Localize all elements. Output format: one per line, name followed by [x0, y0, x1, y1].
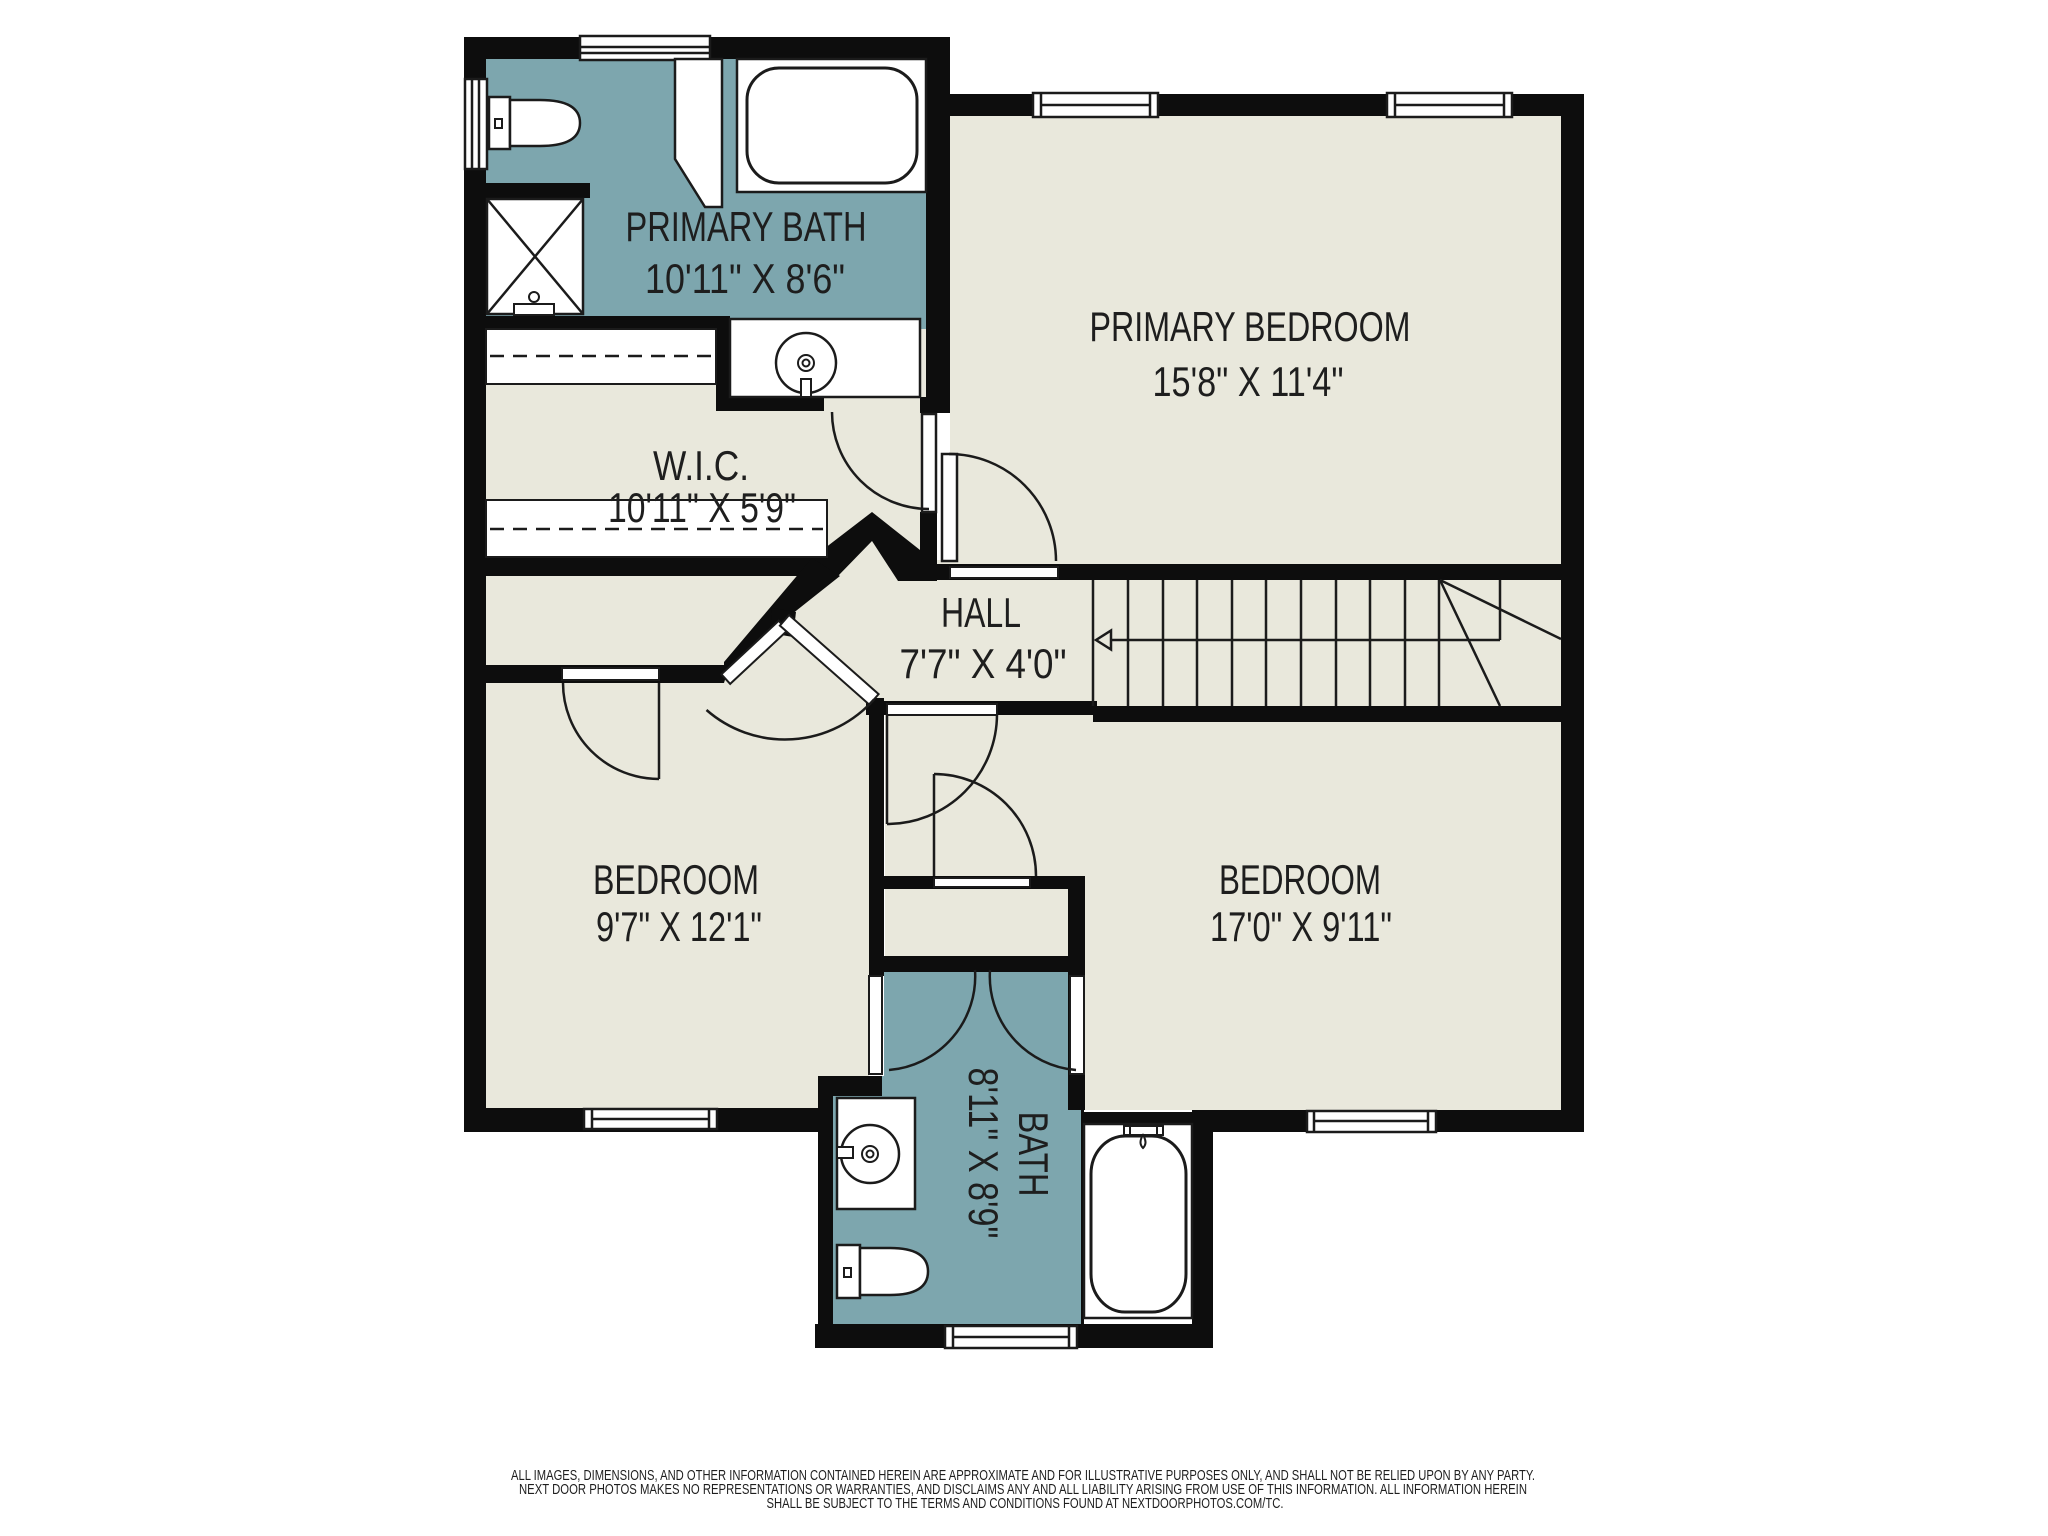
- svg-text:SHALL BE SUBJECT TO THE TERMS: SHALL BE SUBJECT TO THE TERMS AND CONDIT…: [767, 1496, 1284, 1512]
- svg-text:17'0" X 9'11": 17'0" X 9'11": [1210, 903, 1392, 950]
- svg-text:HALL: HALL: [941, 589, 1021, 636]
- svg-text:BEDROOM: BEDROOM: [593, 856, 759, 903]
- svg-text:8'11" X 8'9": 8'11" X 8'9": [960, 1068, 1007, 1239]
- svg-text:PRIMARY BATH: PRIMARY BATH: [626, 203, 867, 250]
- svg-text:10'11" X 8'6": 10'11" X 8'6": [645, 255, 845, 302]
- svg-text:15'8" X 11'4": 15'8" X 11'4": [1153, 358, 1344, 405]
- svg-text:10'11" X 5'9": 10'11" X 5'9": [608, 484, 796, 531]
- svg-text:PRIMARY BEDROOM: PRIMARY BEDROOM: [1090, 303, 1411, 350]
- svg-text:9'7" X 12'1": 9'7" X 12'1": [596, 903, 762, 950]
- svg-text:BEDROOM: BEDROOM: [1219, 856, 1381, 903]
- svg-text:7'7" X 4'0": 7'7" X 4'0": [900, 640, 1067, 687]
- svg-text:BATH: BATH: [1010, 1112, 1057, 1197]
- svg-text:W.I.C.: W.I.C.: [653, 442, 749, 489]
